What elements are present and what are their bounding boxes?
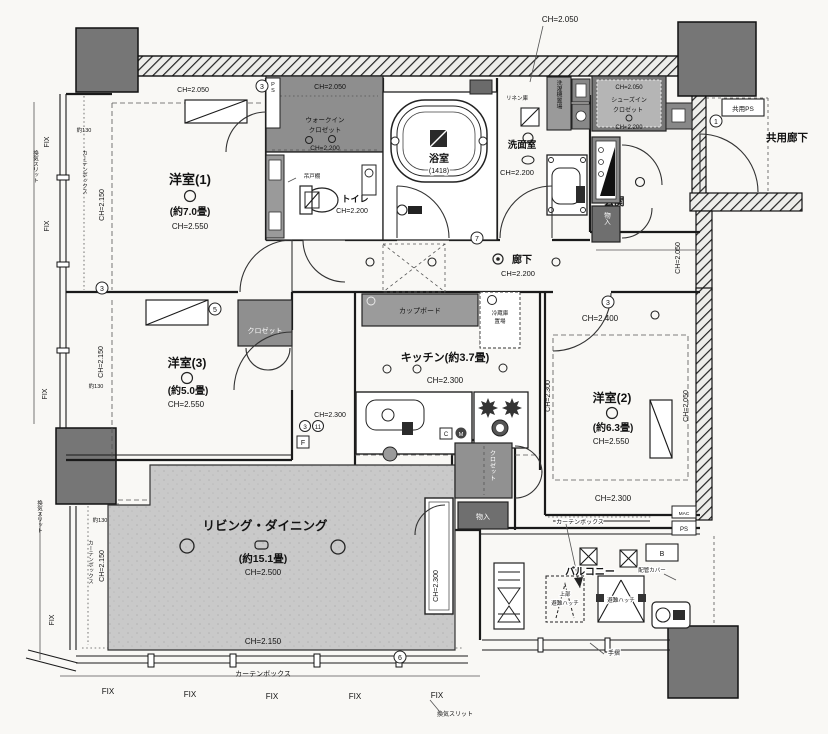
wic-ch: CH=2.200 (310, 145, 340, 152)
ch-left-2: CH=2.150 (98, 346, 105, 378)
hatch-upper-label2: 避難ハッチ (551, 599, 579, 607)
hall-ch: CH=2.200 (501, 269, 535, 278)
fix-bottom-1: FIX (102, 687, 115, 696)
laundry-label: 洗濯機置場 (555, 79, 562, 110)
living-cabinet-ch: CH=2.300 (433, 570, 440, 602)
b-box-label: B (660, 551, 665, 558)
fix-left-1: FIX (44, 136, 51, 147)
room-yoshitsu3: 洋室(3) (約5.0畳) CH=2.550 クロゼット (146, 300, 292, 409)
marker-3b: 3 (303, 424, 307, 431)
ch-left-3: CH=2.150 (99, 550, 106, 582)
walkin-closet: PS CH=2.050 ウォークイン クロゼット CH=2.200 (226, 76, 383, 152)
hatch-label: 避難ハッチ (607, 596, 635, 604)
y2-name: 洋室(2) (593, 390, 632, 405)
marker-11: 11 (315, 425, 322, 431)
pillar-left-middle (56, 428, 116, 504)
living-name: リビング・ダイニング (202, 518, 328, 533)
floorplan-drawing: リビング・ダイニング (約15.1畳) CH=2.500 CH=2.150 CH… (0, 0, 828, 734)
room-yoshitsu2: CH=2.400 洋室(2) (約6.3畳) CH=2.550 CH=2.300… (545, 311, 690, 526)
marker-3-left: 3 (100, 286, 104, 293)
y3-name: 洋室(3) (168, 355, 207, 370)
curtain-bottom: カーテンボックス (235, 670, 291, 678)
f-box-label: F (301, 440, 305, 447)
ch-leader-label: CH=2.050 (542, 15, 579, 24)
bath-size: (1418) (429, 168, 449, 175)
wic-line2: クロゼット (309, 125, 342, 134)
y2-ch-top: CH=2.400 (582, 314, 619, 323)
wic-line1: ウォークイン (306, 116, 345, 124)
fix-left-2: FIX (44, 220, 51, 231)
living-monoire: 物入 (476, 512, 490, 521)
hall-ch-lower: CH=2.300 (314, 412, 346, 419)
wic-ps-label: PS (270, 82, 276, 94)
vent-bottom: 換気スリット (437, 710, 473, 718)
curtain-left-1: カーテンボックス (81, 150, 88, 195)
kitchen-ch: CH=2.300 (427, 376, 464, 385)
room-kitchen: カップボード 冷蔵庫 置場 キッチン(約3.7畳) CH=2.300 C M (356, 292, 528, 461)
marker-3-y2: 3 (606, 300, 610, 307)
wic-ch-top: CH=2.050 (314, 84, 346, 91)
room-toilet: 吊戸棚 トイレ CH=2.200 (266, 152, 383, 282)
kitchen-name: キッチン(約3.7畳) (401, 350, 490, 364)
c-box-label: C (444, 432, 449, 438)
room-living: リビング・ダイニング (約15.1畳) CH=2.500 CH=2.150 CH… (108, 465, 455, 650)
curtain-left-2: カーテンボックス (87, 540, 94, 585)
living-size: (約15.1畳) (239, 552, 287, 565)
about130-1: 約130 (77, 126, 92, 134)
about130-2: 約130 (89, 382, 104, 390)
shoes-in-closet: CH=2.050 シューズイン クロゼット CH=2.200 (592, 76, 692, 131)
pillar-top-left (76, 28, 138, 92)
ch-left-1: CH=2.150 (99, 189, 106, 221)
room-bath: 浴室 (1418) (383, 92, 497, 240)
sic-ch-top: CH=2.050 (615, 85, 643, 91)
cupboard-label: カップボード (399, 307, 441, 315)
marker-7: 7 (475, 236, 479, 243)
vent-left-1: 換気スリット (32, 149, 39, 184)
y1-ch-top: CH=2.050 (177, 87, 209, 94)
fix-bottom-2: FIX (184, 690, 197, 699)
linen-label: リネン庫 (506, 94, 529, 102)
marker-6: 6 (398, 655, 402, 662)
tesuri-label: 手摺 (608, 649, 620, 657)
room-yoshitsu1: CH=2.050 洋室(1) (約7.0畳) CH=2.550 (169, 87, 247, 231)
y2-ch-low: CH=2.300 (595, 494, 632, 503)
sic-ch: CH=2.200 (615, 125, 643, 131)
pillar-top-right (678, 22, 756, 96)
living-ch-low: CH=2.150 (245, 637, 282, 646)
y1-size: (約7.0畳) (170, 205, 211, 218)
fix-bottom-3: FIX (266, 692, 279, 701)
wash-ch: CH=2.200 (500, 168, 534, 177)
sic-line1: シューズイン (611, 96, 647, 104)
marker-3-top: 3 (260, 84, 264, 91)
fix-bottom-4: FIX (349, 692, 362, 701)
y2-ch-right: CH=2.050 (683, 390, 690, 422)
entrance-ch-side: CH=2.050 (675, 242, 682, 274)
y1-name: 洋室(1) (169, 172, 211, 187)
wash-name: 洗面室 (508, 139, 537, 151)
fix-left-3: FIX (42, 388, 49, 399)
ps-box-label: PS (680, 527, 688, 533)
toilet-ch: CH=2.200 (336, 208, 368, 215)
y2-curtainbox: カーテンボックス (556, 518, 604, 526)
y2-size: (約6.3畳) (593, 421, 634, 434)
fix-left-4: FIX (49, 614, 56, 625)
pipe-cover-label: 配管カバー (638, 566, 666, 574)
living-ch: CH=2.500 (245, 568, 282, 577)
shared-corridor: 共用廊下 共用PS (722, 99, 808, 144)
fridge-label2: 置場 (494, 317, 506, 325)
hatch-upper-label1: 上部 (559, 590, 571, 598)
y1-ch: CH=2.550 (172, 222, 209, 231)
bath-name: 浴室 (429, 152, 449, 165)
fix-bottom-5: FIX (431, 691, 444, 700)
hall-name: 廊下 (512, 253, 532, 266)
vent-left-2: 換気スリット (36, 499, 43, 533)
y2-hall-ch: CH=2.300 (545, 380, 552, 412)
fridge-label1: 冷蔵庫 (492, 309, 509, 317)
living-closet-label: クロゼット (489, 450, 496, 481)
pillar-bottom-right (668, 626, 738, 698)
m-circle-label: M (459, 432, 464, 438)
mac-box-label: MAC (679, 511, 690, 517)
kyoyo-ps-label: 共用PS (732, 104, 754, 113)
tsuridana-label: 吊戸棚 (304, 172, 321, 180)
y3-size: (約5.0畳) (168, 384, 209, 397)
y2-ch: CH=2.550 (593, 437, 630, 446)
about130-3: 約130 (93, 516, 108, 524)
marker-1: 1 (714, 119, 718, 126)
y3-ch: CH=2.550 (168, 400, 205, 409)
marker-5: 5 (213, 307, 217, 314)
floorplan-page: リビング・ダイニング (約15.1畳) CH=2.500 CH=2.150 CH… (0, 0, 828, 734)
sic-line2: クロゼット (613, 106, 643, 114)
corridor-name: 共用廊下 (766, 131, 808, 144)
